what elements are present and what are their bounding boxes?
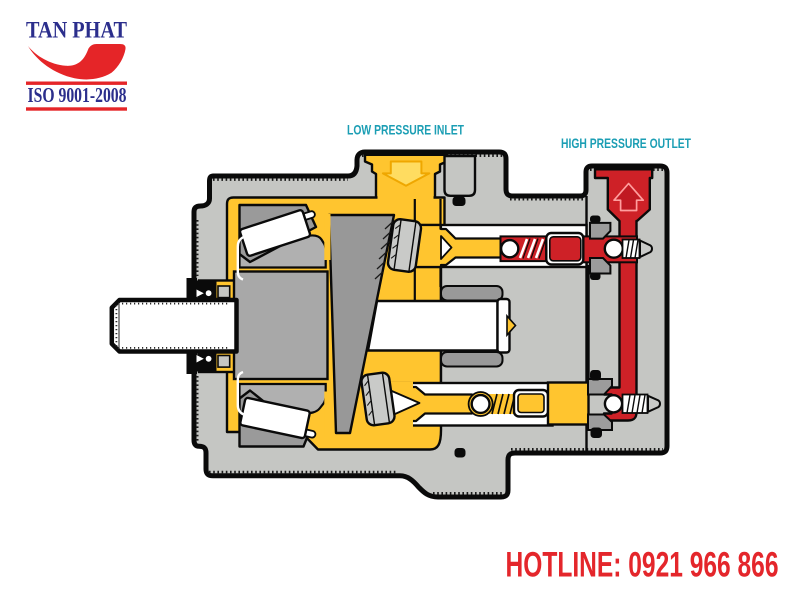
svg-text:HIGH PRESSURE OUTLET: HIGH PRESSURE OUTLET: [561, 135, 691, 151]
svg-text:ISO 9001-2008: ISO 9001-2008: [28, 83, 127, 107]
svg-text:LOW PRESSURE INLET: LOW PRESSURE INLET: [347, 122, 464, 138]
svg-text:HOTLINE: 0921 966 866: HOTLINE: 0921 966 866: [506, 546, 779, 585]
svg-text:TAN PHAT: TAN PHAT: [26, 18, 127, 43]
